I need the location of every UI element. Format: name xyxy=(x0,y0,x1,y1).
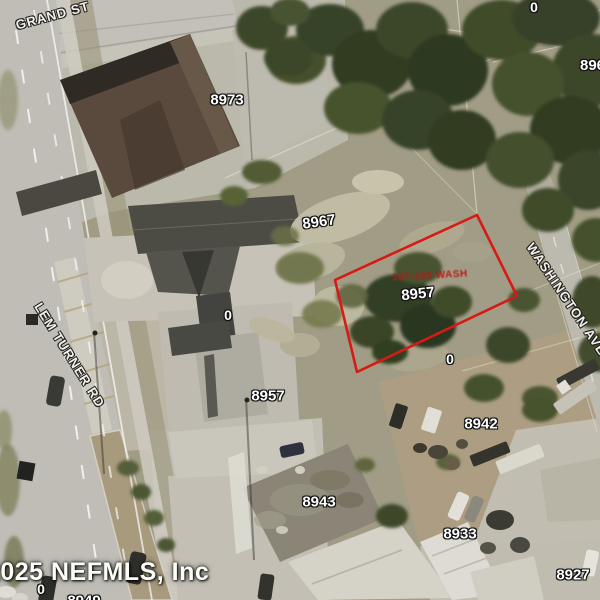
lot-zero-label-subject: 0 xyxy=(446,352,454,366)
parcel-label-8933: 8933 xyxy=(443,527,476,542)
parcel-label-8942: 8942 xyxy=(464,417,497,432)
subject-parcel-label: 8957 xyxy=(401,285,436,303)
aerial-parcel-map: GRAND ST LEM TURNER RD WASHINGTON AVE 89… xyxy=(0,0,600,600)
parcel-label-8943: 8943 xyxy=(302,495,335,510)
parcel-label-8973: 8973 xyxy=(210,93,243,108)
parcel-label-8961: 8961 xyxy=(580,58,600,73)
parcel-label-8967: 8967 xyxy=(301,212,336,231)
lot-zero-label-center: 0 xyxy=(224,308,232,322)
mls-watermark: ©2025 NEFMLS, Inc xyxy=(0,558,209,587)
parcel-label-8949: 8949 xyxy=(67,594,100,600)
parcel-label-8927: 8927 xyxy=(556,568,589,583)
parcel-label-8957-south: 8957 xyxy=(251,389,284,404)
satellite-imagery xyxy=(0,0,600,600)
lot-zero-label-north: 0 xyxy=(530,0,538,14)
